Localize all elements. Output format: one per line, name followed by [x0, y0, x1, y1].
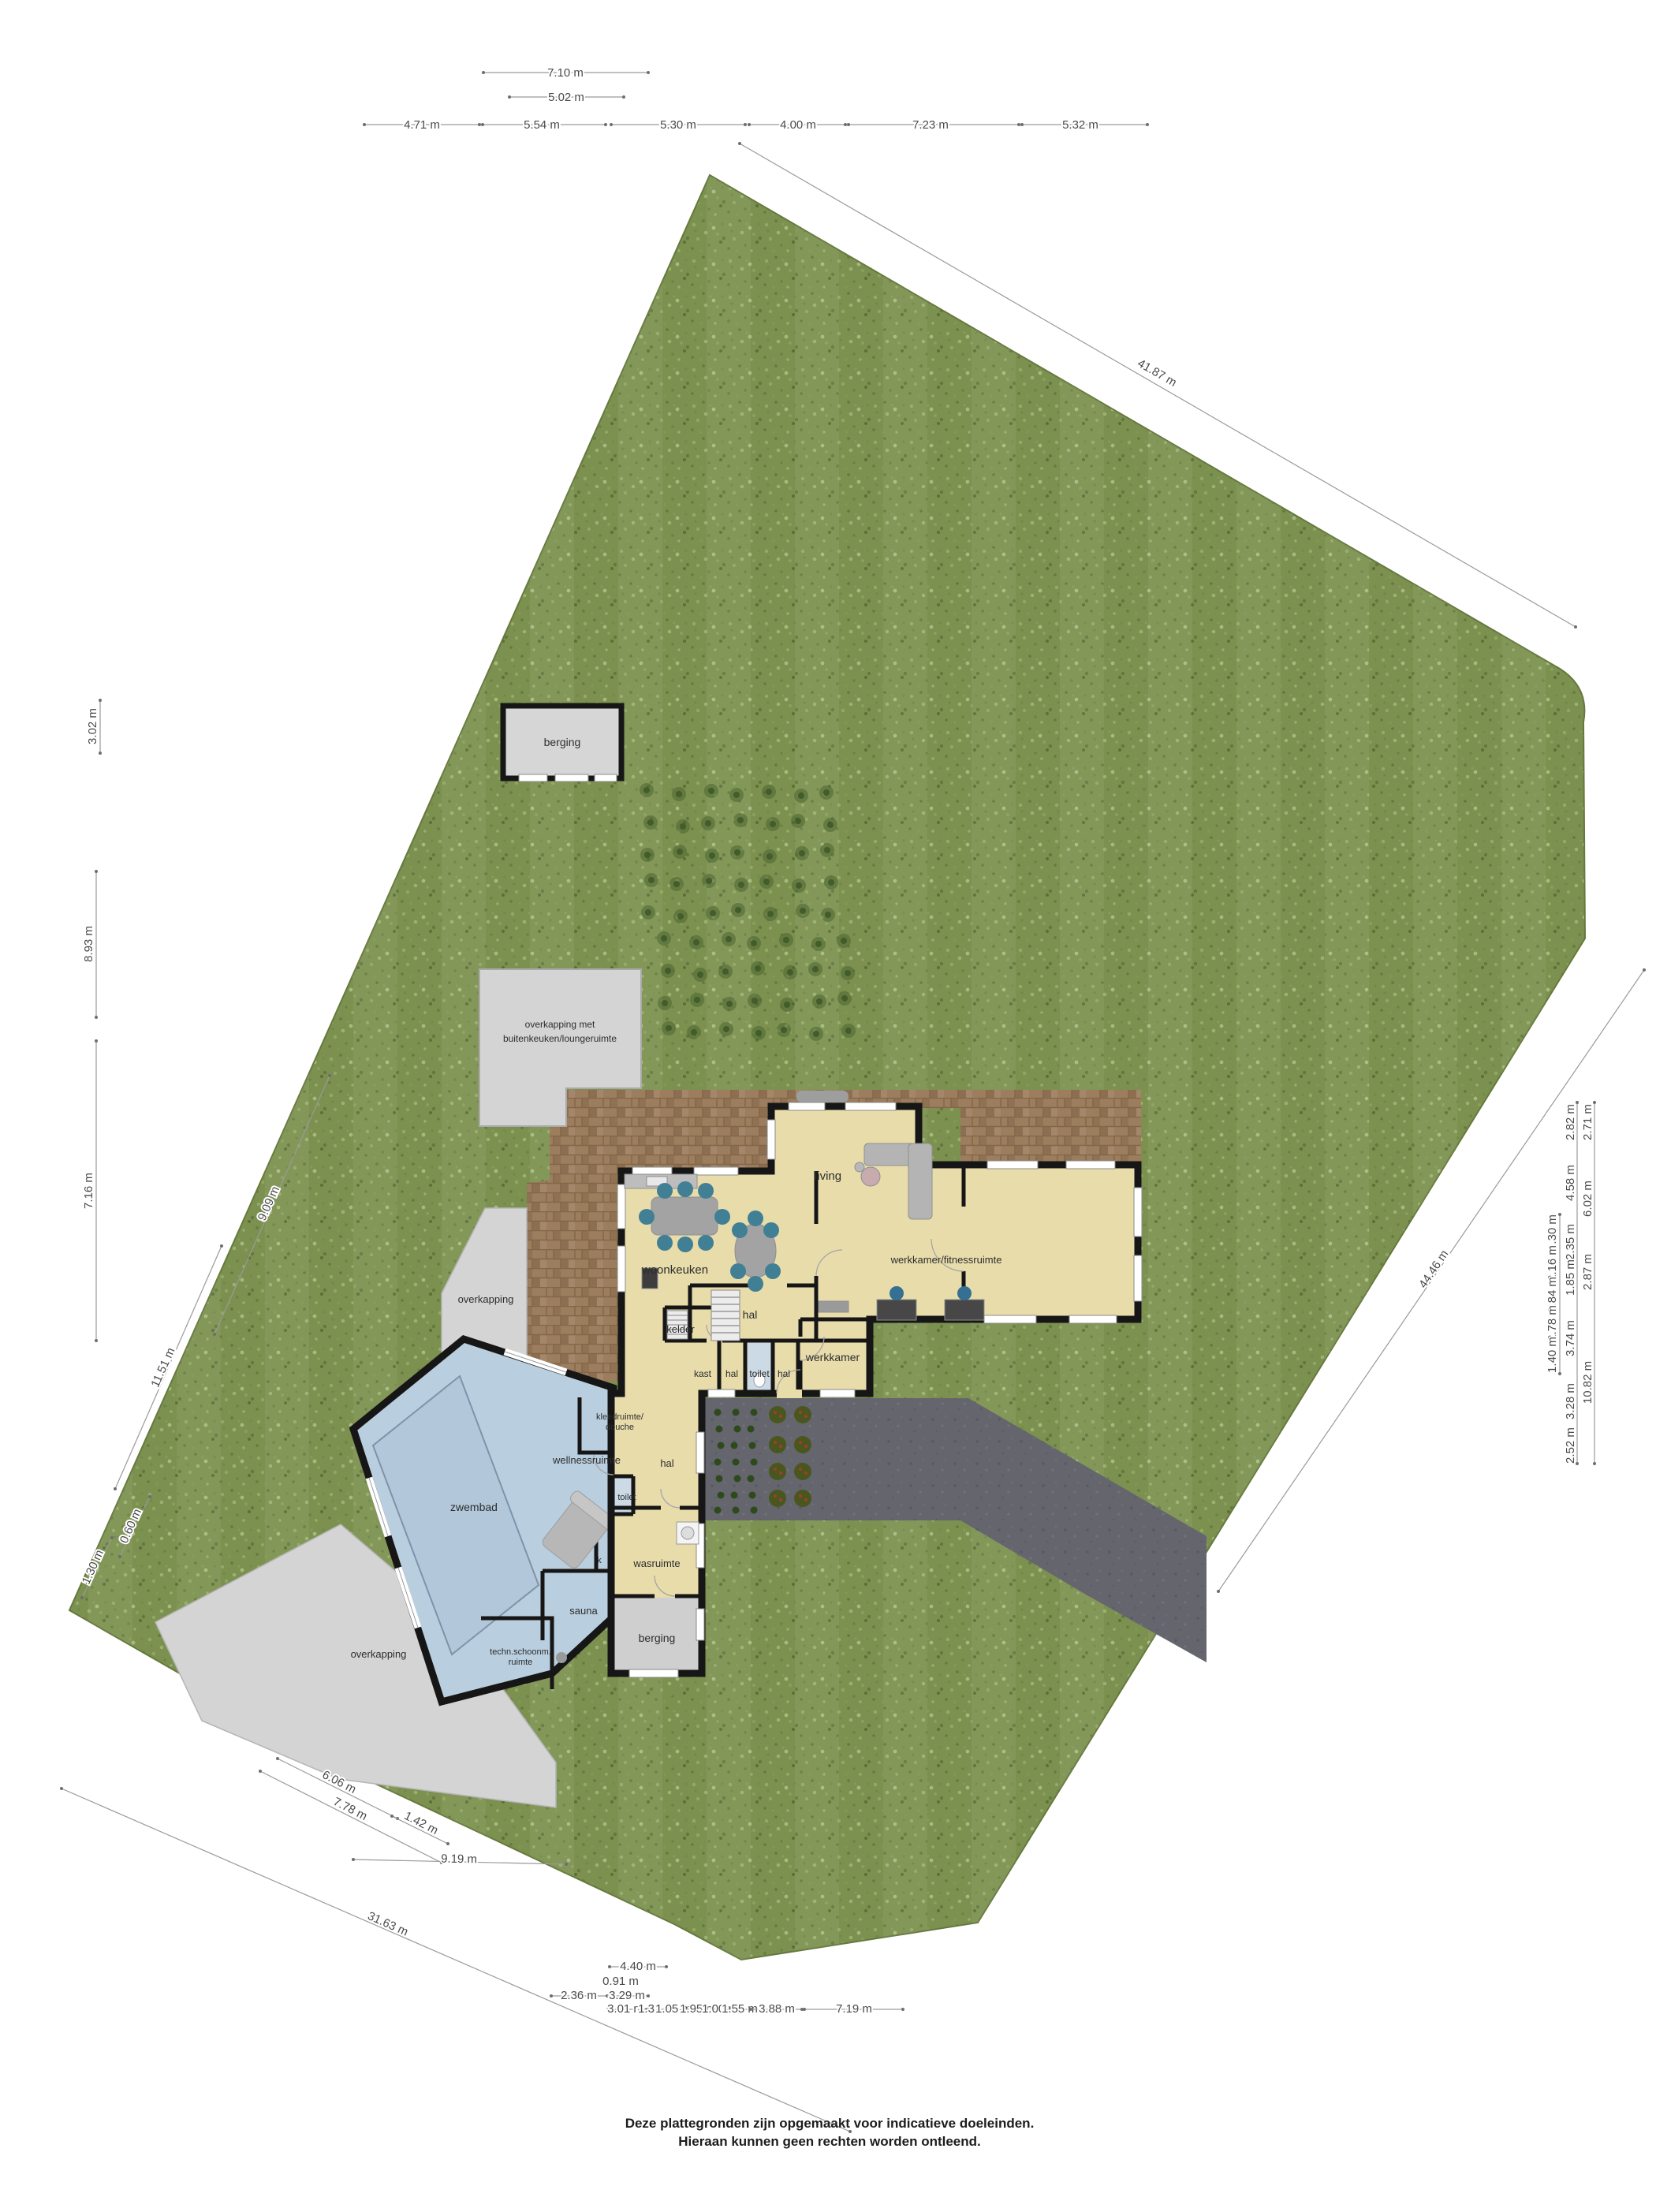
structure-label: overkapping	[351, 1648, 407, 1660]
plant-icon	[749, 1492, 756, 1499]
plant-icon	[734, 1475, 741, 1483]
room-label: wellnessruimte	[552, 1454, 621, 1466]
structure-label: buitenkeuken/loungeruimte	[503, 1033, 617, 1044]
room-label: hal	[778, 1368, 790, 1379]
dimension-label: 4.40 m	[620, 1960, 656, 1973]
dimension-label: 2.78 m	[1546, 1305, 1559, 1341]
room-label: kleedruimte/	[596, 1412, 644, 1422]
bush-icon	[794, 1436, 811, 1453]
plant-icon	[716, 1426, 723, 1433]
dimension-label: 2.35 m	[1564, 1224, 1577, 1260]
room-label: werkkamer/fitnessruimte	[890, 1254, 1002, 1266]
sideboard-icon	[819, 1301, 849, 1312]
dimension-label: 1.40 m	[1546, 1337, 1559, 1373]
plant-icon	[731, 1492, 738, 1499]
plant-icon	[733, 1507, 740, 1514]
dimension-label: 7.16 m	[82, 1173, 95, 1209]
bush-icon	[769, 1490, 786, 1507]
dimension-label: 8.93 m	[82, 926, 95, 962]
bush-icon	[769, 1463, 786, 1480]
disclaimer-line2: Hieraan kunnen geen rechten worden ontle…	[678, 2134, 981, 2149]
dimension-label: 1.85 m	[1564, 1259, 1577, 1296]
room-label: techn.schoonm.	[490, 1647, 551, 1657]
plant-icon	[751, 1409, 758, 1416]
desk-icon-2	[945, 1300, 984, 1320]
plant-icon	[734, 1426, 741, 1433]
room-label: hal	[743, 1308, 758, 1321]
terrace-bench	[796, 1091, 849, 1102]
dimension-label: 4.00 m	[780, 118, 816, 132]
dimension-label: 7.78 m	[331, 1795, 370, 1823]
plant-icon	[748, 1475, 755, 1483]
bush-icon	[769, 1436, 786, 1453]
plant-icon	[733, 1459, 740, 1466]
desk-chair-2	[957, 1286, 972, 1300]
dimension-label: 10.82 m	[1581, 1361, 1594, 1404]
side-table-icon	[556, 1652, 567, 1663]
room-label: berging	[639, 1632, 676, 1644]
room-label: hal	[725, 1368, 738, 1379]
room-label: living	[815, 1169, 841, 1183]
dimension-label: 0.91 m	[602, 1975, 639, 1988]
room-label: zwembad	[450, 1501, 498, 1513]
plant-icon	[733, 1409, 740, 1416]
plant-icon	[718, 1492, 725, 1499]
plant-icon	[716, 1475, 723, 1483]
room-label: wasruimte	[632, 1557, 680, 1569]
dimension-label: 2.36 m	[561, 1989, 597, 2002]
plant-icon	[749, 1442, 756, 1449]
dimension-label: 9.19 m	[441, 1852, 477, 1867]
room-label: ruimte	[509, 1658, 533, 1667]
front-door-gap	[777, 1389, 802, 1398]
dimension-label: 1.42 m	[402, 1809, 441, 1837]
dimension-label: 44.46 m	[1416, 1248, 1451, 1290]
structure-label: overkapping met	[525, 1019, 595, 1030]
dimension-label: 5.32 m	[1062, 118, 1098, 132]
bush-icon	[794, 1406, 811, 1423]
plant-icon	[714, 1409, 722, 1416]
bush-icon	[769, 1406, 786, 1423]
dimension-label: 31.63 m	[366, 1909, 410, 1939]
dimension-label: 5.54 m	[524, 118, 560, 132]
room-label: toilet	[749, 1368, 770, 1379]
bush-icon	[794, 1463, 811, 1480]
structure-label: berging	[544, 736, 581, 748]
dimension-label: 2.87 m	[1581, 1254, 1594, 1290]
floorplan-page: 7.10 m5.02 m4.71 m5.54 m5.30 m4.00 m7.23…	[0, 0, 1656, 2208]
room-label: toilet	[617, 1493, 636, 1502]
plant-icon	[714, 1459, 722, 1466]
dimension-label: 7.23 m	[912, 118, 949, 132]
site-plan: 7.10 m5.02 m4.71 m5.54 m5.30 m4.00 m7.23…	[0, 0, 1656, 2208]
room-label: kast	[694, 1368, 712, 1379]
dimension-label: 3.29 m	[609, 1989, 645, 2002]
dimension-label: 2.52 m	[1564, 1427, 1577, 1464]
room-label: hal	[660, 1457, 673, 1469]
room-label: k	[597, 1556, 602, 1565]
dimension-label: 3.02 m	[86, 708, 99, 744]
dimension-label: 4.58 m	[1564, 1165, 1577, 1201]
dimension-label: 1.30 m	[1546, 1214, 1559, 1251]
dimension-label: 3.74 m	[1564, 1320, 1577, 1356]
dimension-label: 4.71 m	[404, 118, 440, 132]
dimension-label: 2.71 m	[1581, 1104, 1594, 1140]
structure-label: overkapping	[458, 1293, 514, 1305]
plant-icon	[718, 1442, 725, 1449]
bush-icon	[794, 1490, 811, 1507]
dimension-label: 3.88 m	[759, 2002, 795, 2016]
dimension-label: 2.82 m	[1564, 1104, 1577, 1140]
dimension-label: 6.02 m	[1581, 1181, 1594, 1217]
plant-icon	[731, 1442, 738, 1449]
dimension-label: 7.10 m	[547, 66, 584, 80]
room-label: kelder	[666, 1323, 695, 1335]
sofa-icon-2	[908, 1143, 932, 1219]
plant-icon	[751, 1507, 758, 1514]
disclaimer-line1: Deze plattegronden zijn opgemaakt voor i…	[625, 2116, 1035, 2131]
plant-icon	[714, 1507, 722, 1514]
room-label: douche	[606, 1423, 634, 1432]
dimension-label: 7.19 m	[836, 2002, 872, 2016]
room-label: werkkamer	[805, 1351, 860, 1363]
dimension-label: 5.30 m	[660, 118, 696, 132]
round-chair-icon	[861, 1167, 880, 1186]
desk-icon-1	[877, 1300, 916, 1320]
plant-icon	[748, 1426, 755, 1433]
plant-icon	[751, 1459, 758, 1466]
dining-table-icon	[651, 1197, 718, 1235]
dimension-label: 3.28 m	[1564, 1383, 1577, 1419]
dimension-label: 2.16 m	[1546, 1245, 1559, 1281]
room-label: sauna	[569, 1605, 598, 1617]
dimension-label: 5.02 m	[548, 91, 584, 104]
room-label: woonkeuken	[641, 1263, 708, 1277]
desk-chair-1	[890, 1286, 904, 1300]
